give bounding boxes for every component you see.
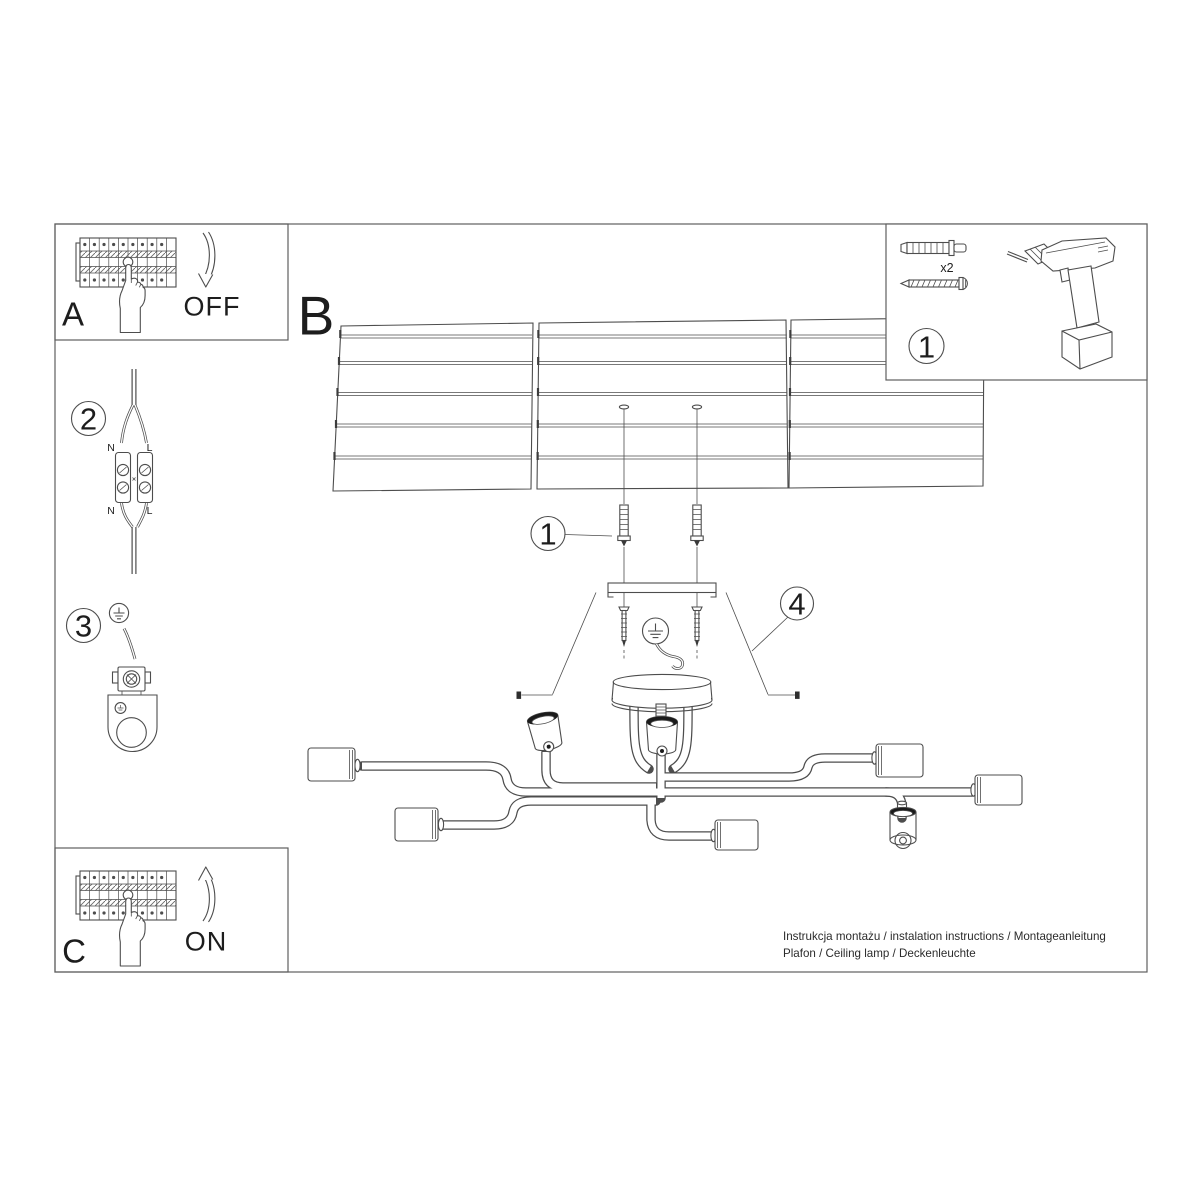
ground-wire xyxy=(657,644,683,669)
lamp-socket xyxy=(975,775,1022,805)
step-1-number: 1 xyxy=(539,519,556,550)
parts-box-number: 1 xyxy=(918,331,935,362)
footer-line-2: Plafon / Ceiling lamp / Deckenleuchte xyxy=(783,947,976,960)
panel-c-state: ON xyxy=(185,929,228,956)
screw-icon xyxy=(692,607,702,647)
canopy xyxy=(612,674,712,721)
wire-label-n-top: N xyxy=(107,442,115,453)
instruction-sheet: A OFF C ON B 2 3 1 4 1 x2 N L N L Instru… xyxy=(0,0,1200,1200)
wall-plug-icon xyxy=(691,505,703,547)
wire-label-l-top: L xyxy=(147,442,153,453)
panel-c-label: C xyxy=(62,935,86,968)
lamp-socket xyxy=(876,744,923,777)
mounting-bracket xyxy=(608,583,716,593)
wire-label-l-bottom: L xyxy=(147,505,153,516)
wall-plug-icon xyxy=(618,505,630,547)
lamp-socket xyxy=(715,820,758,850)
arrow-down-icon xyxy=(199,232,215,287)
panel-c xyxy=(55,848,288,972)
step-3-grounding-diagram xyxy=(108,603,157,751)
footer-line-1: Instrukcja montażu / instalation instruc… xyxy=(783,930,1106,943)
anchor-quantity: x2 xyxy=(940,262,953,275)
step-3-number: 3 xyxy=(75,611,92,642)
side-screw-icon xyxy=(795,692,800,699)
section-b-label: B xyxy=(298,289,335,344)
lamp-socket-open xyxy=(526,710,565,755)
lamp-socket-open xyxy=(647,717,678,756)
side-screw-icon xyxy=(517,692,522,699)
arrow-up-icon xyxy=(199,867,215,922)
step-4-number: 4 xyxy=(788,589,805,620)
step-2-number: 2 xyxy=(80,404,97,435)
drill-hole-mark xyxy=(692,405,701,409)
wire-label-n-bottom: N xyxy=(107,505,115,516)
diagram-artwork xyxy=(0,0,1200,1200)
panel-a-label: A xyxy=(62,298,84,331)
drill-hole-mark xyxy=(619,405,628,409)
panel-a xyxy=(55,224,288,340)
panel-a-state: OFF xyxy=(184,294,241,321)
ground-symbol-icon xyxy=(109,603,128,622)
screw-icon xyxy=(619,607,629,647)
lamp-socket xyxy=(308,748,355,781)
lamp-socket-hanging xyxy=(890,801,916,848)
step-2-wiring-diagram xyxy=(116,369,153,574)
ground-symbol-icon xyxy=(643,618,669,644)
lamp-socket xyxy=(395,808,438,841)
